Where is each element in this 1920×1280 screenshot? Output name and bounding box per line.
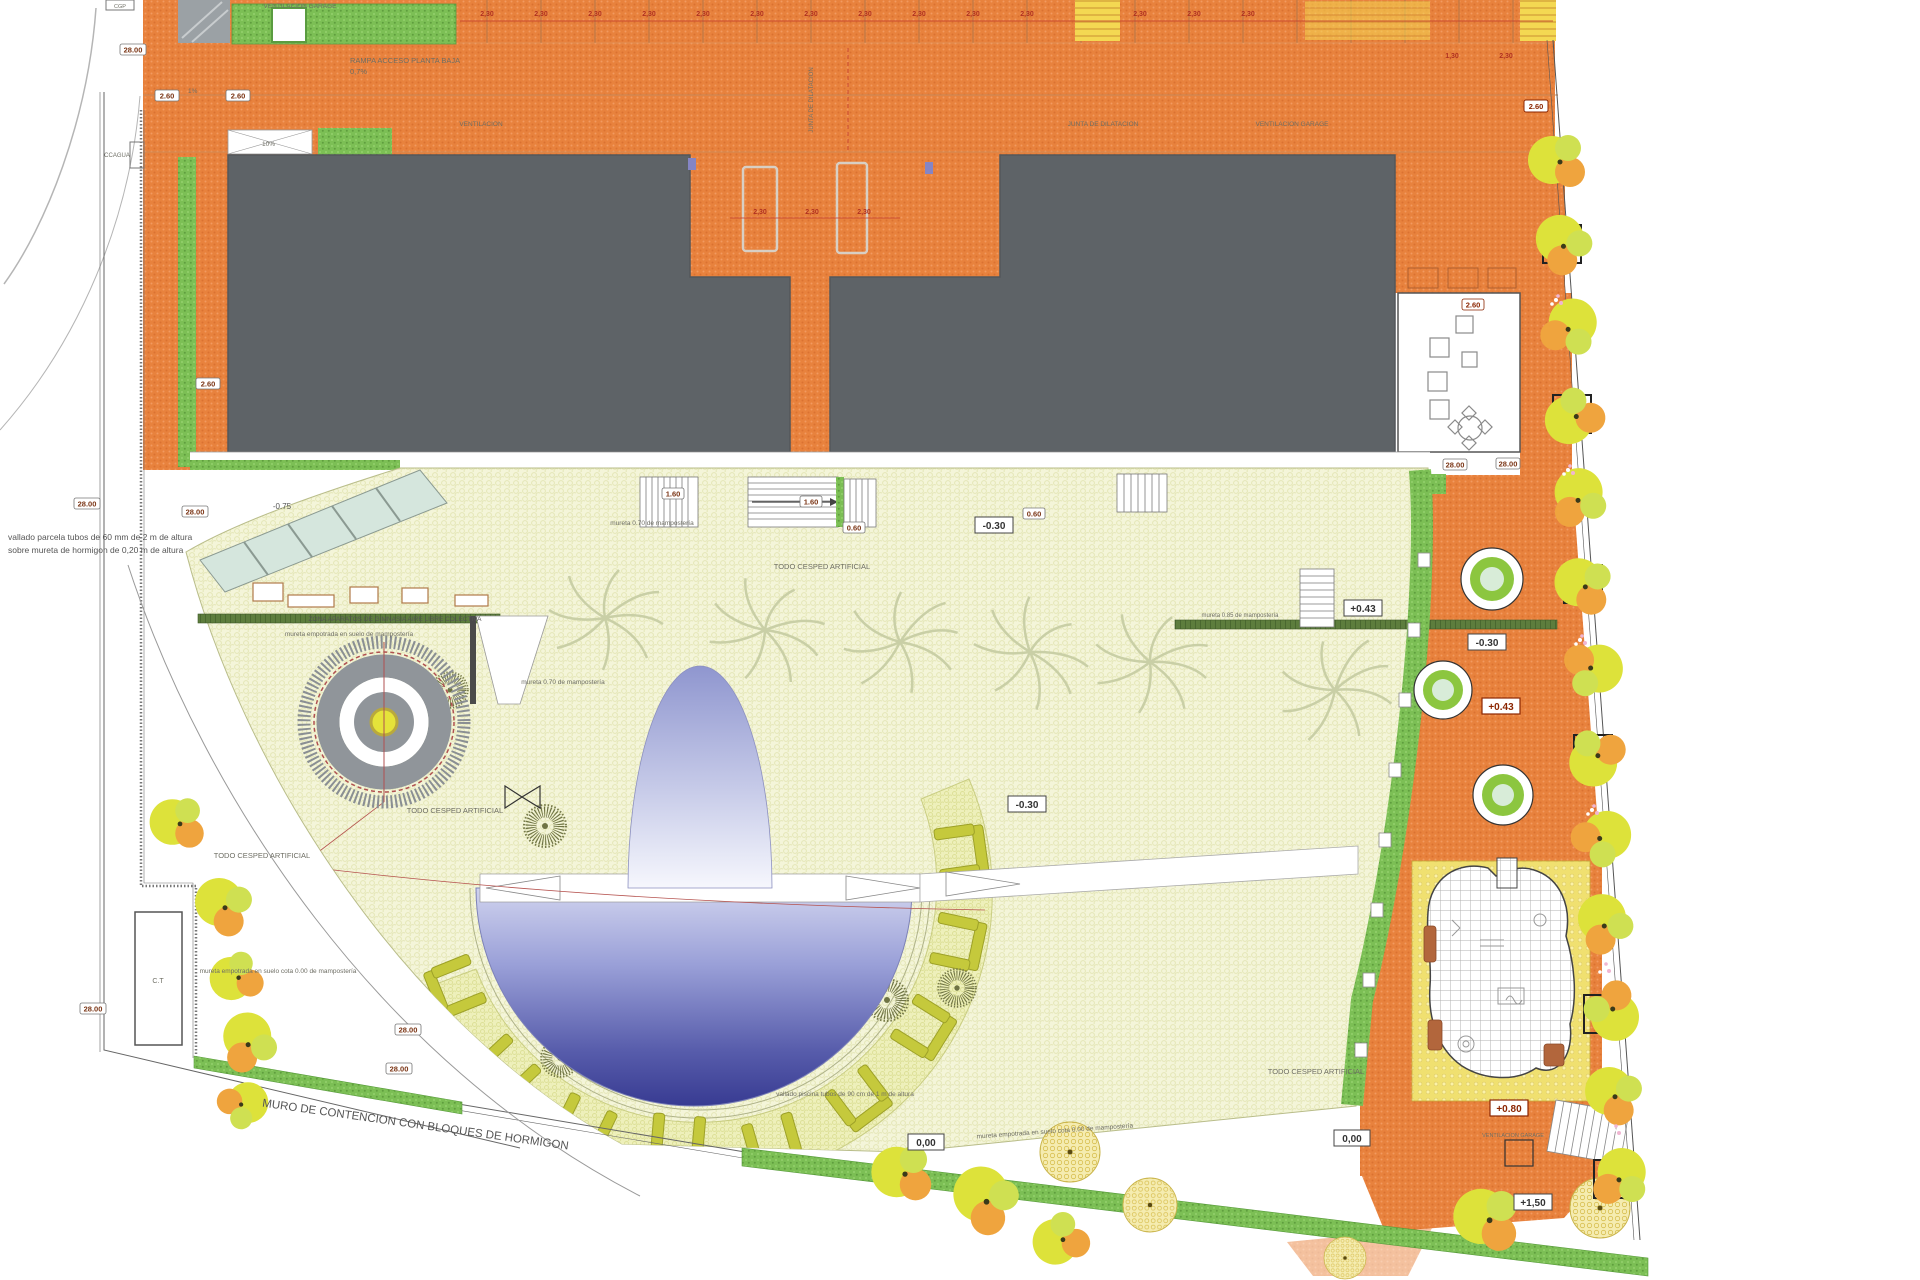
svg-text:2.60: 2.60	[231, 92, 246, 101]
label-mureta-cota-2: mureta empotrada en suelo cota 0.00 de m…	[200, 968, 357, 975]
svg-text:2,30: 2,30	[753, 209, 767, 216]
svg-text:2,30: 2,30	[966, 11, 980, 18]
level-000-b: 0,00	[1334, 1130, 1370, 1146]
site-plan-canvas: VENTILACION GARAGE RAMPA ACCESO PLANTA B…	[0, 0, 1920, 1280]
label-ventilacion: VENTILACION	[459, 121, 503, 128]
svg-text:28.00: 28.00	[84, 1005, 103, 1014]
east-wall	[1175, 620, 1557, 629]
label-junta-vertical: JUNTA DE DILATACION	[809, 67, 815, 132]
svg-text:28.00: 28.00	[186, 508, 205, 517]
svg-text:+1,50: +1,50	[1520, 1198, 1546, 1209]
svg-text:2,30: 2,30	[588, 11, 602, 18]
label-cesped-4: TODO CESPED ARTIFICIAL	[1268, 1067, 1364, 1076]
label-ct: C.T	[152, 978, 164, 985]
label-cesped-1: TODO CESPED ARTIFICIAL	[774, 562, 870, 571]
label-rampa: RAMPA ACCESO PLANTA BAJA	[350, 56, 460, 65]
site-plan-svg: VENTILACION GARAGE RAMPA ACCESO PLANTA B…	[0, 0, 1920, 1280]
level-p080: +0.80	[1490, 1100, 1528, 1116]
svg-text:28.00: 28.00	[390, 1065, 409, 1074]
svg-text:2,30: 2,30	[642, 11, 656, 18]
stairs-e	[1300, 569, 1334, 627]
level-m030-a: -0.30	[975, 517, 1013, 533]
svg-text:1.60: 1.60	[666, 490, 681, 499]
svg-text:2,30: 2,30	[696, 11, 710, 18]
svg-text:2.60: 2.60	[1466, 301, 1481, 310]
svg-text:28.00: 28.00	[1499, 460, 1518, 469]
level-000-a: 0,00	[908, 1134, 944, 1150]
svg-text:2,30: 2,30	[858, 11, 872, 18]
planter-circle	[1461, 548, 1523, 610]
svg-text:+0.43: +0.43	[1350, 604, 1376, 615]
svg-text:-0.30: -0.30	[1016, 800, 1039, 811]
svg-text:2.60: 2.60	[1529, 102, 1544, 111]
crosswalk-1	[1075, 0, 1120, 41]
left-hedge-strip	[178, 157, 196, 467]
label-ventilacion-garage-2: VENTILACION GARAGE	[1256, 121, 1330, 128]
road-curve-1	[4, 8, 96, 284]
label-rampa-slope: 0,7%	[350, 67, 367, 76]
level-m075: -0.75	[273, 502, 292, 511]
label-pct10: 10%	[262, 141, 275, 148]
crosswalk-2	[1305, 1, 1430, 40]
label-vallado-piscina: vallado piscina tubos de 90 cm de 1 m de…	[776, 1091, 914, 1098]
planter-circle	[1414, 661, 1472, 719]
svg-text:2,30: 2,30	[805, 209, 819, 216]
svg-text:2,30: 2,30	[1241, 11, 1255, 18]
svg-text:2,30: 2,30	[1020, 11, 1034, 18]
level-p043-b: +0.43	[1482, 698, 1520, 714]
svg-text:2,30: 2,30	[857, 209, 871, 216]
garage-ramp-box	[272, 8, 306, 42]
access-ramp-10	[228, 128, 392, 155]
top-hedge	[232, 4, 456, 44]
label-junta: JUNTA DE DILATACION	[1068, 121, 1139, 128]
svg-text:2,30: 2,30	[480, 11, 494, 18]
stairs-c	[844, 479, 876, 527]
planter-circle	[1473, 765, 1533, 825]
label-cesped-3: TODO CESPED ARTIFICIAL	[214, 851, 310, 860]
svg-text:0.60: 0.60	[847, 524, 862, 533]
svg-text:2,30: 2,30	[912, 11, 926, 18]
label-cesped-2: TODO CESPED ARTIFICIAL	[407, 806, 503, 815]
svg-text:28.00: 28.00	[78, 500, 97, 509]
svg-text:2.60: 2.60	[160, 92, 175, 101]
level-p150: +1,50	[1514, 1194, 1552, 1210]
label-ccagua: CCAGUA	[104, 153, 130, 159]
label-ventilacion-garage-top: VENTILACION GARAGE	[264, 3, 338, 10]
svg-text:0,00: 0,00	[1342, 1134, 1362, 1145]
svg-text:2,30: 2,30	[1133, 11, 1147, 18]
svg-text:2.60: 2.60	[201, 380, 216, 389]
label-mureta-085: mureta 0.85 de mampostería	[1201, 613, 1279, 619]
label-mureta-070-a: mureta 0.70 de mampostería	[521, 679, 605, 686]
svg-text:28.00: 28.00	[399, 1026, 418, 1035]
label-vallado-2: sobre mureta de hormigon de 0,20 m de al…	[8, 545, 184, 555]
svg-text:1,30: 1,30	[1445, 53, 1459, 60]
svg-text:2,30: 2,30	[804, 11, 818, 18]
svg-text:+0.43: +0.43	[1488, 702, 1514, 713]
svg-text:+0.80: +0.80	[1496, 1104, 1522, 1115]
svg-text:0,00: 0,00	[916, 1138, 936, 1149]
level-m030-c: -0.30	[1008, 796, 1046, 812]
vent-shaft	[178, 0, 230, 43]
svg-text:2,30: 2,30	[1187, 11, 1201, 18]
label-pct1: 1%	[188, 88, 198, 95]
label-ventilacion-garage-play: VENTILACION GARAGE	[1482, 1133, 1544, 1139]
svg-text:2,30: 2,30	[750, 11, 764, 18]
label-vallado-1: vallado parcela tubos de 60 mm de 2 m de…	[8, 532, 193, 542]
level-p043-a: +0.43	[1344, 600, 1382, 616]
terrace-room	[1398, 293, 1520, 452]
svg-text:2,30: 2,30	[1499, 53, 1513, 60]
label-mureta-empotrada: mureta empotrada en suelo de mampostería	[285, 631, 414, 638]
svg-text:2,30: 2,30	[534, 11, 548, 18]
svg-text:28.00: 28.00	[1446, 461, 1465, 470]
level-m030-b: -0.30	[1468, 634, 1506, 650]
svg-text:0.60: 0.60	[1027, 510, 1042, 519]
label-zona-aparatos: ZONA APARATOS DE GIMNASIA AIRE LIBRE COL…	[309, 616, 483, 623]
svg-text:-0.30: -0.30	[983, 521, 1006, 532]
svg-text:-0.30: -0.30	[1476, 638, 1499, 649]
label-mureta-070-b: mureta 0.70 de mampostería	[610, 520, 694, 527]
crosswalk-3	[1520, 0, 1556, 41]
stairs-b	[748, 477, 838, 527]
label-cgp: CGP	[114, 4, 126, 10]
svg-text:1.60: 1.60	[804, 498, 819, 507]
stairs-d	[1117, 474, 1167, 512]
roof-planters	[1408, 268, 1516, 288]
svg-text:28.00: 28.00	[124, 46, 143, 55]
